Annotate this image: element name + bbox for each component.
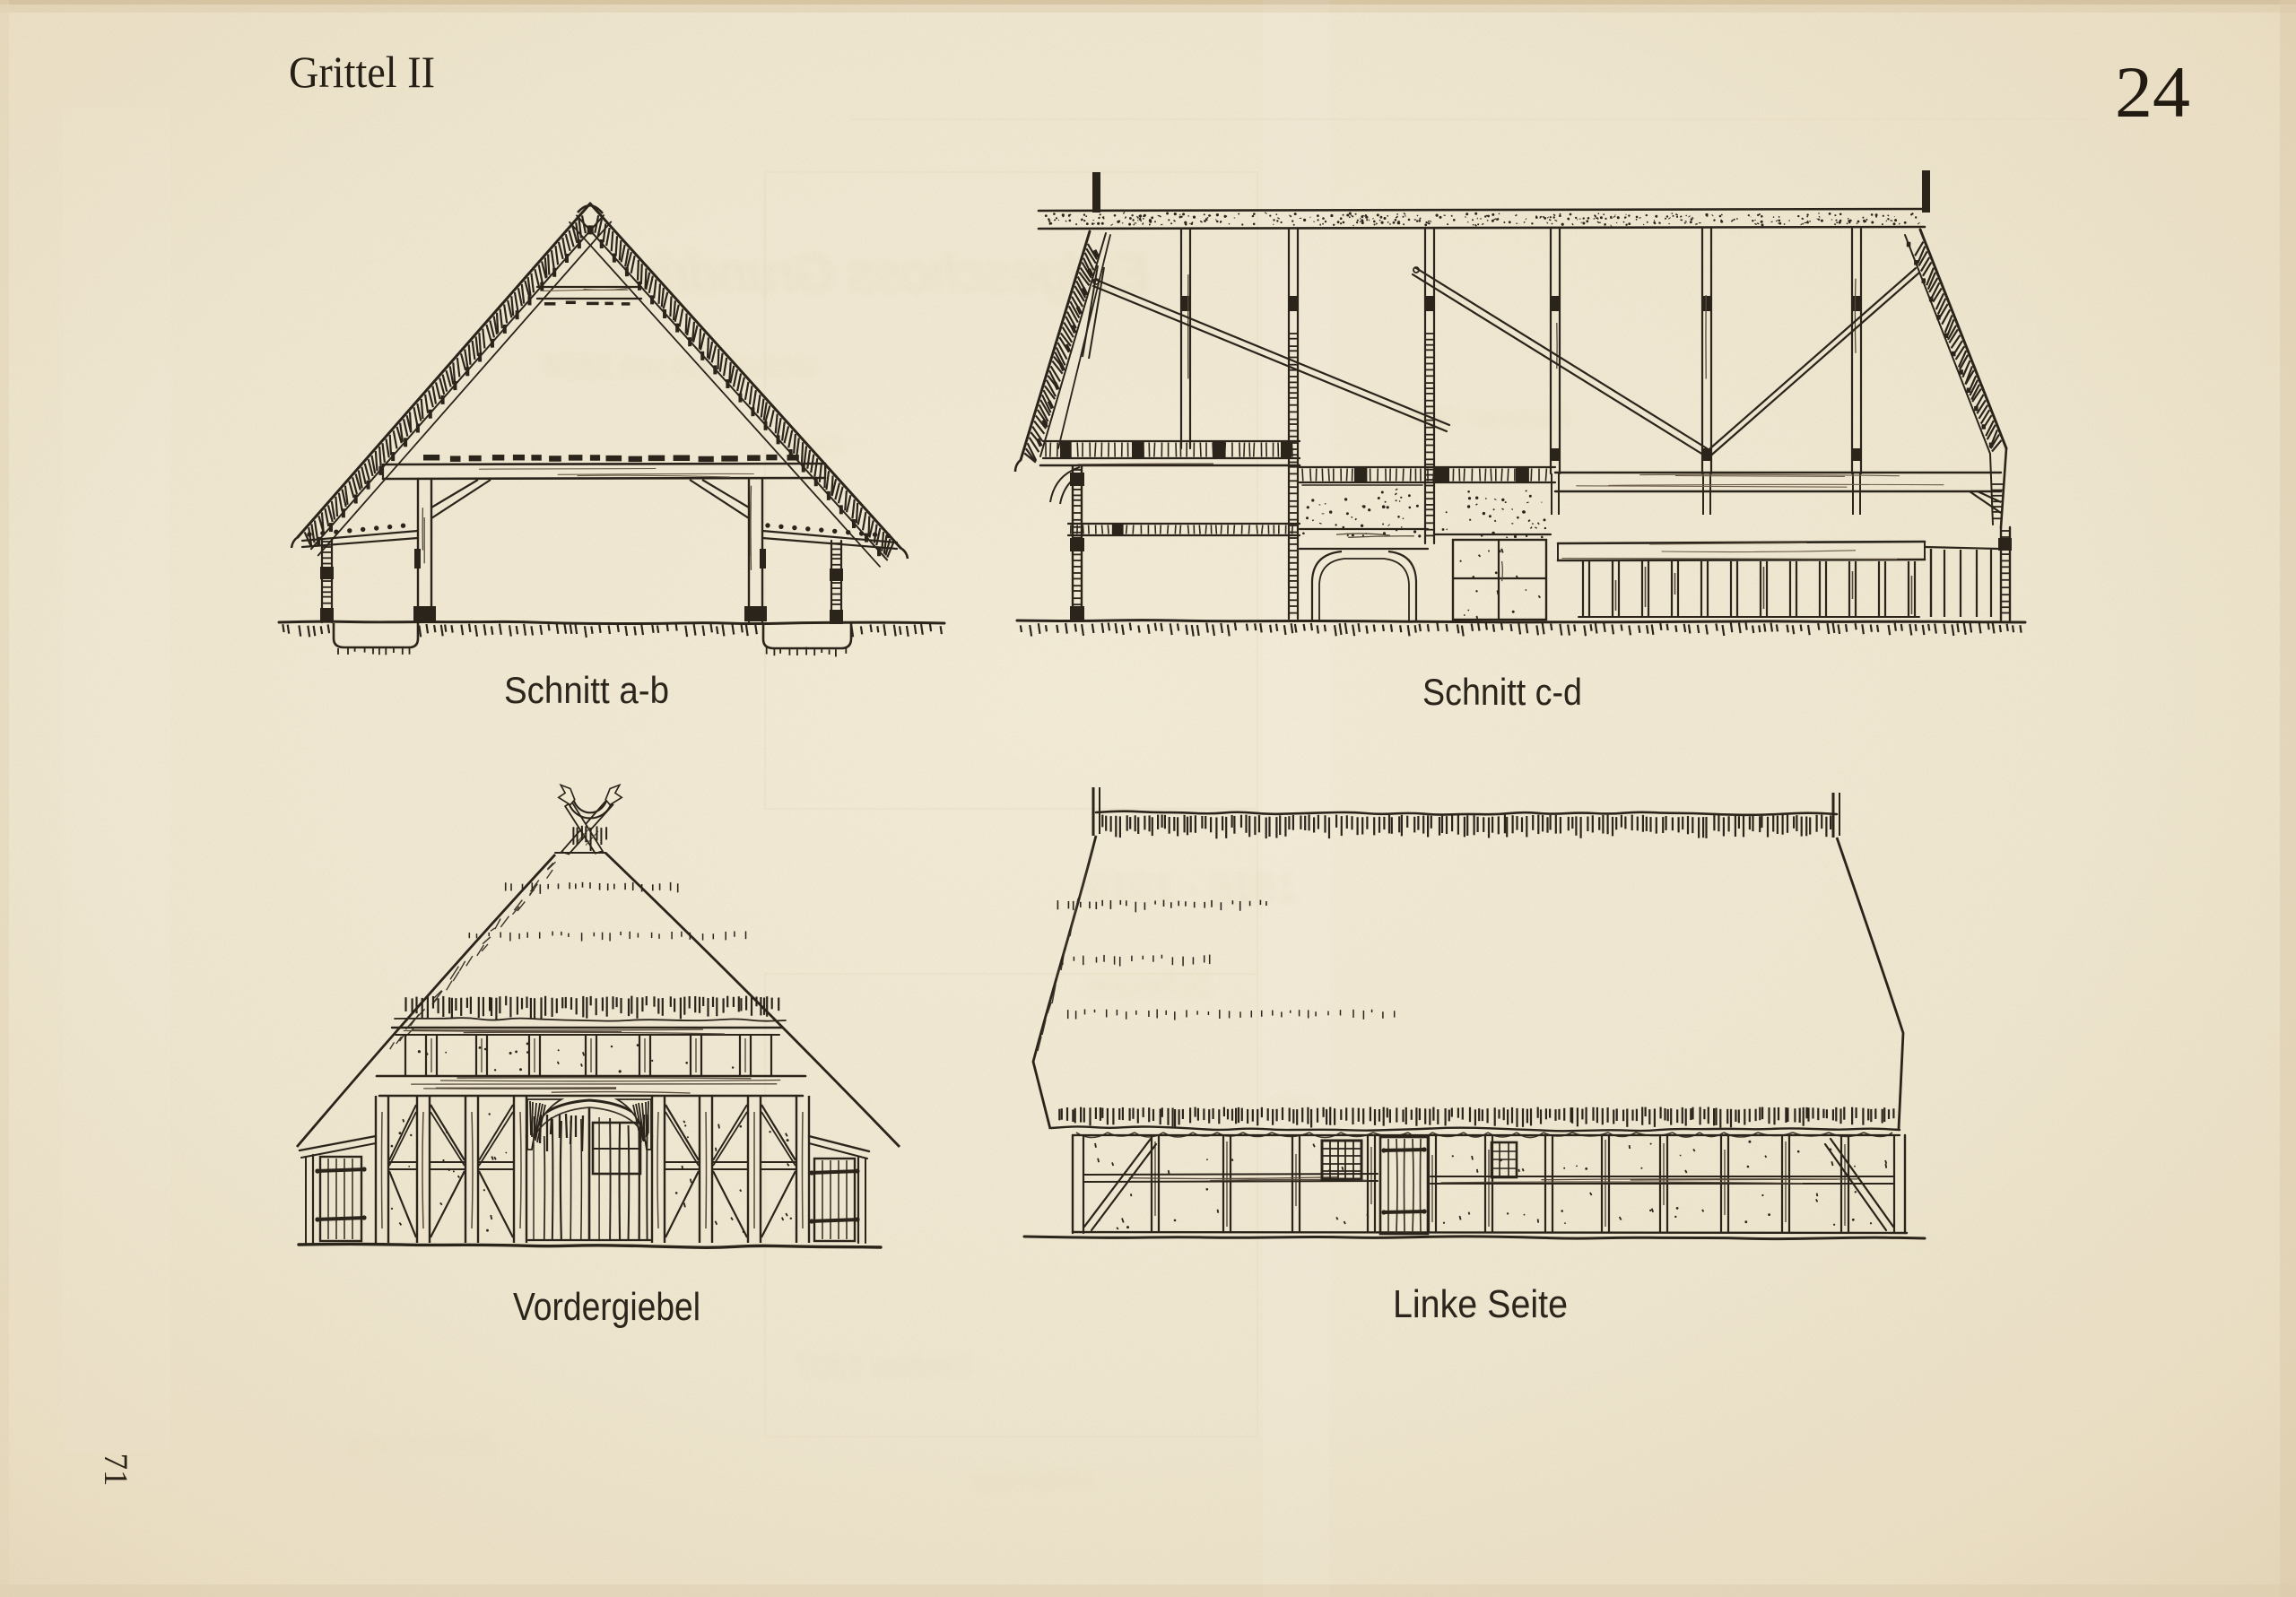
svg-text:Umbau 1907: Umbau 1907 [796,1350,971,1384]
svg-text:Schnitt a-b: Schnitt a-b [504,669,669,711]
svg-text:Hofanlage: Hofanlage [970,1465,1093,1495]
svg-text:Grittel II: Grittel II [289,47,435,97]
svg-text:Vordergiebel: Vordergiebel [513,1285,700,1329]
svg-text:Schnitt c-d: Schnitt c-d [1422,671,1582,713]
svg-text:24: 24 [2115,51,2190,133]
svg-text:Erdgeschoss Grundriss: Erdgeschoss Grundriss [609,245,1150,303]
svg-text:Anmerkung: Anmerkung [348,1427,497,1459]
svg-text:Scheune: Scheune [1084,966,1212,1002]
svg-text:71: 71 [97,1454,134,1487]
svg-text:Wohnhaus um 1834: Wohnhaus um 1834 [545,350,818,384]
svg-text:Linke Seite: Linke Seite [1393,1282,1568,1326]
